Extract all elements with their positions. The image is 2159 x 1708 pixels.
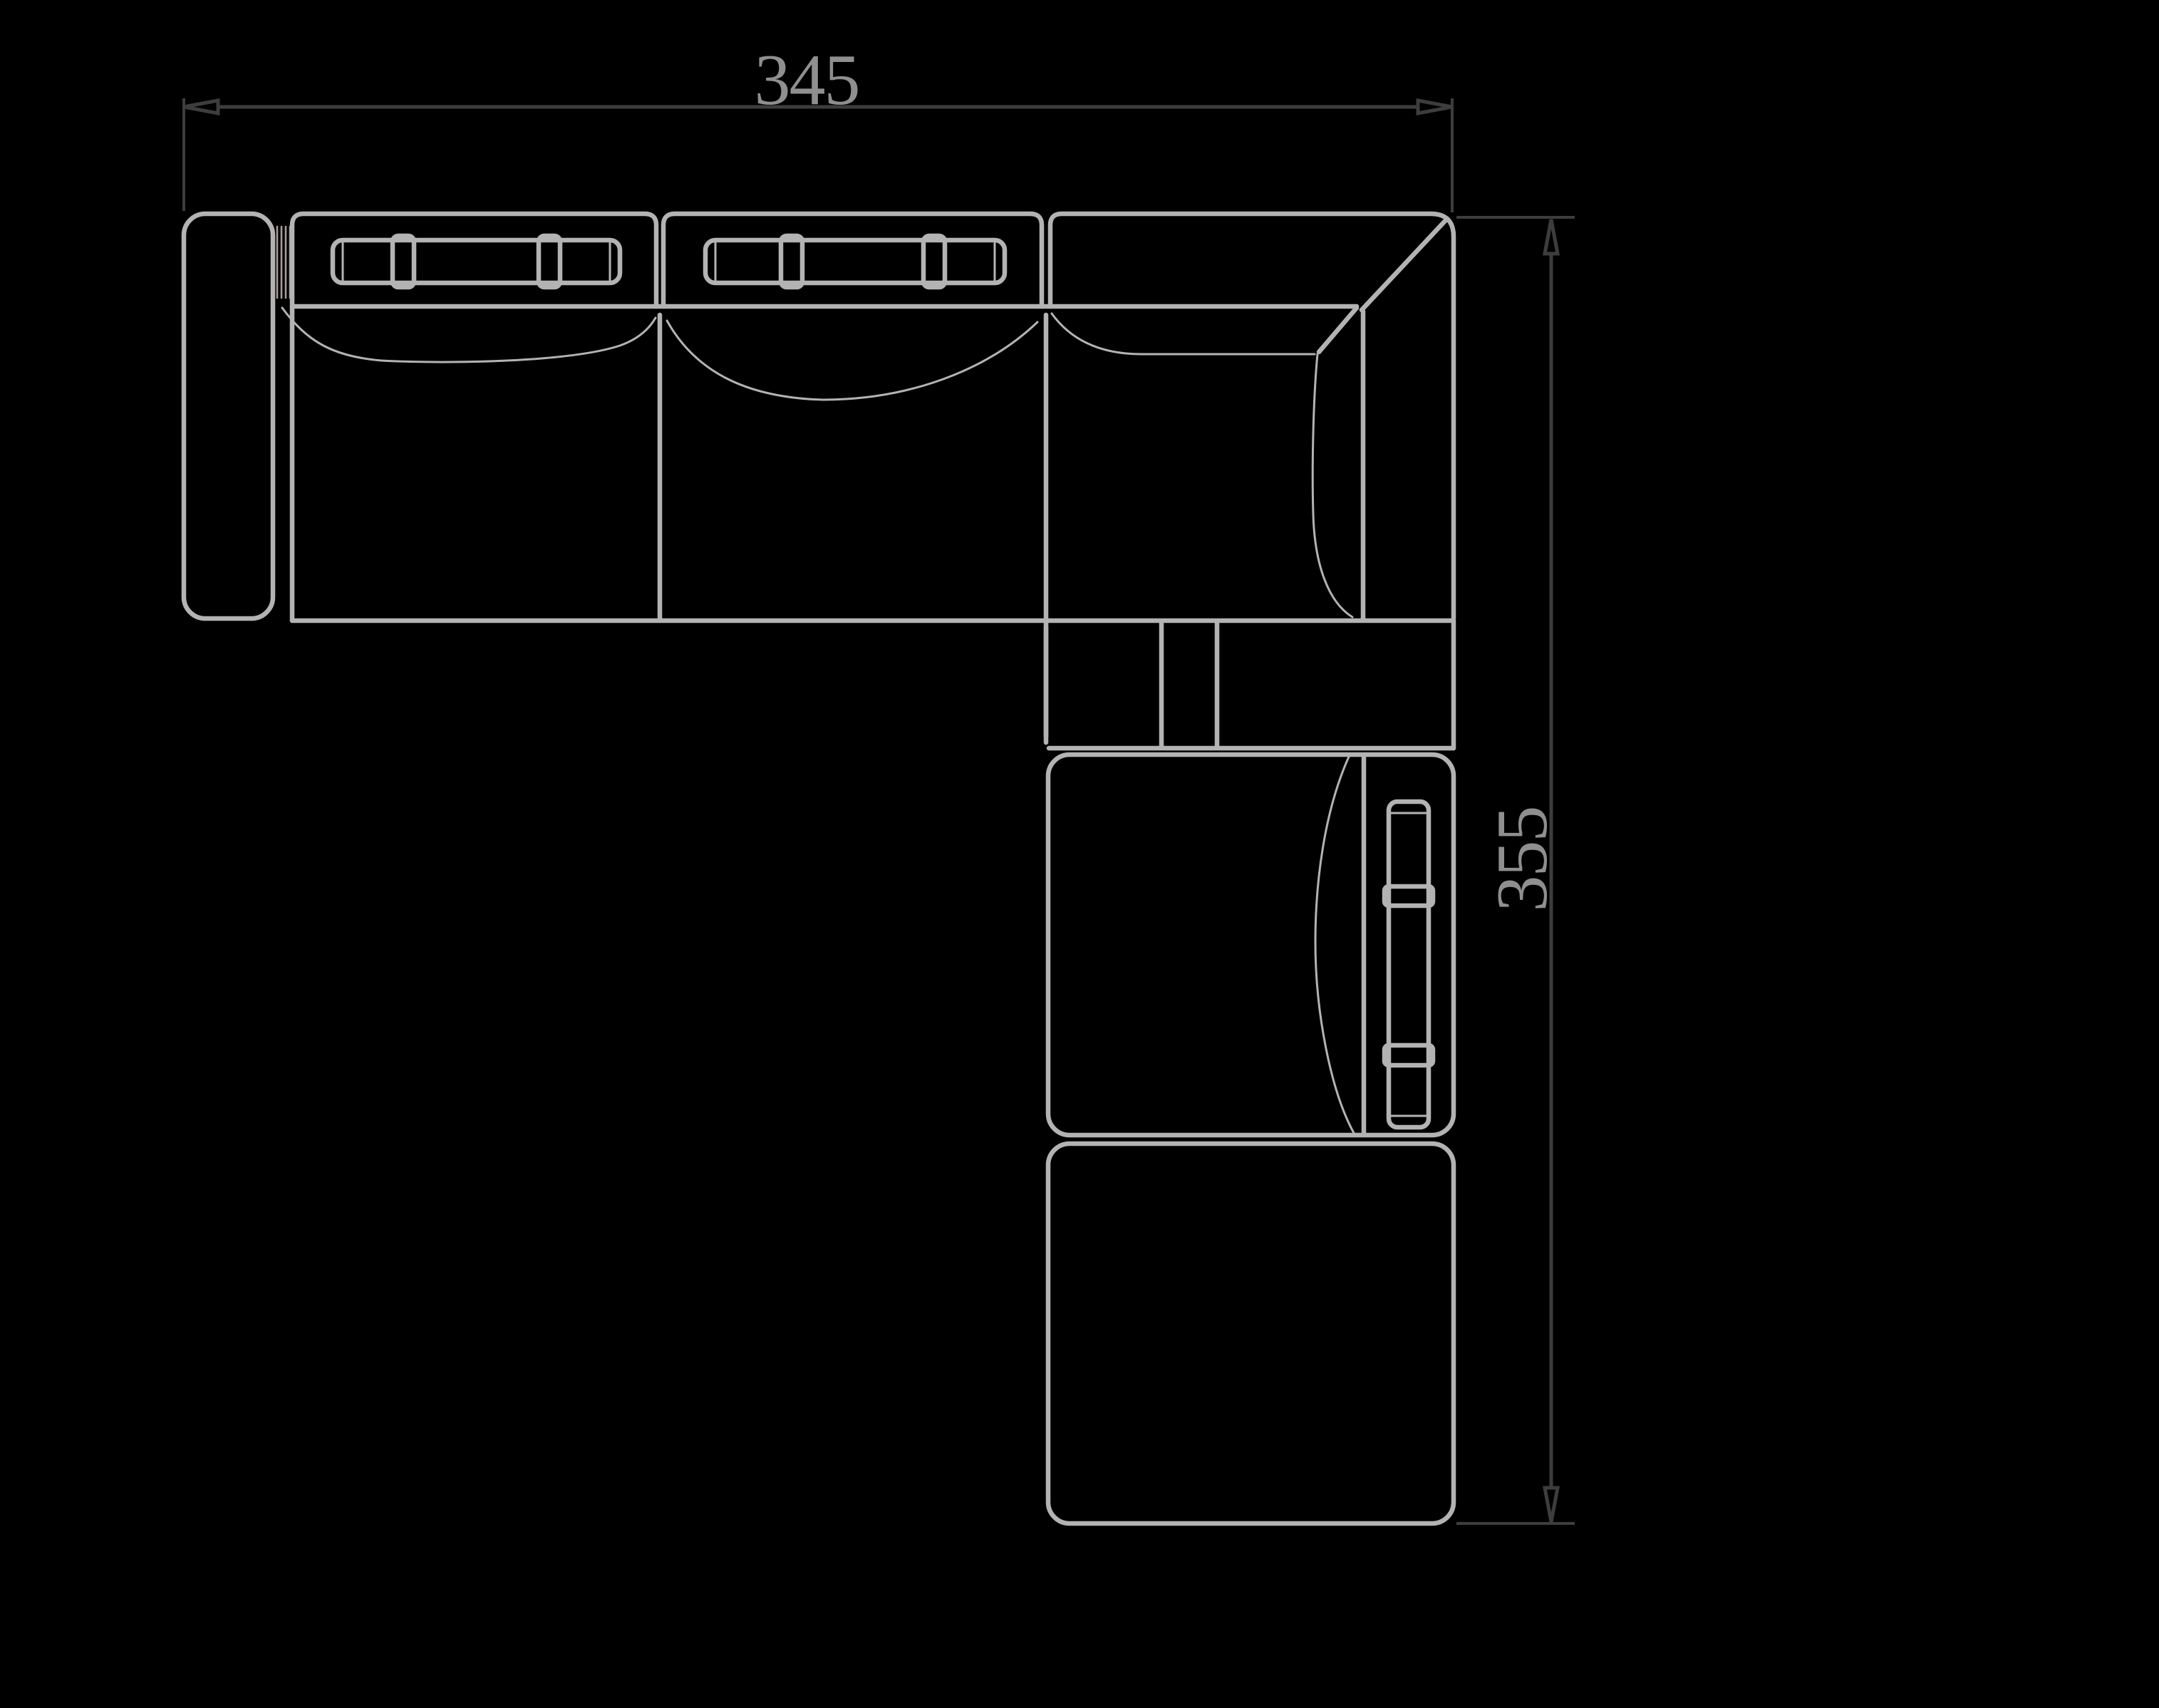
corner-cushion-top-curve xyxy=(1052,314,1315,354)
chaise-outline xyxy=(1048,755,1454,1135)
cushion-curve-2 xyxy=(667,321,1037,400)
ottoman-section xyxy=(1048,1144,1454,1523)
seat-section-1-back xyxy=(292,214,656,621)
corner-front-rail xyxy=(1046,621,1454,748)
headrest-bar-2-body xyxy=(705,240,1005,283)
sofa-plan-drawing: 345 355 xyxy=(0,0,2159,1708)
armrest-seam-hatch xyxy=(277,227,290,298)
width-dimension: 345 xyxy=(184,40,1452,212)
headrest-bar-1 xyxy=(333,236,620,287)
left-armrest xyxy=(184,214,273,618)
width-dimension-label: 345 xyxy=(755,40,859,120)
sofa-outline xyxy=(184,214,1454,1523)
headrest-bar-2-clamp-left xyxy=(781,236,802,287)
cushion-curve-1 xyxy=(282,308,656,362)
headrest-bar-1-clamp-right xyxy=(539,236,560,287)
corner-cushion-side-curve xyxy=(1313,354,1352,617)
arrowhead-left-icon xyxy=(184,100,218,113)
headrest-bar-1-clamp-left xyxy=(393,236,414,287)
chaise-bar-clamp-bottom xyxy=(1384,1045,1433,1065)
technical-drawing-page: 345 355 xyxy=(0,0,2159,1708)
headrest-bar-1-body xyxy=(333,240,620,283)
headrest-bar-2 xyxy=(705,236,1005,287)
chaise-headrest-bar-body xyxy=(1389,802,1429,1127)
height-dimension: 355 xyxy=(1456,217,1575,1523)
chaise-bolster-curve xyxy=(1315,757,1354,1133)
headrest-bar-2-clamp-right xyxy=(923,236,945,287)
corner-diagonal-line xyxy=(1362,219,1446,310)
chaise-headrest-bar xyxy=(1384,802,1433,1127)
height-dimension-label: 355 xyxy=(1482,807,1563,912)
corner-diagonal-short-line xyxy=(1319,308,1357,352)
arrowhead-right-icon xyxy=(1418,100,1452,113)
seat-section-2-back xyxy=(663,214,1042,306)
chaise-section xyxy=(1048,755,1454,1135)
arrowhead-down-icon xyxy=(1545,1488,1558,1522)
arrowhead-up-icon xyxy=(1545,219,1558,254)
chaise-bar-clamp-top xyxy=(1384,886,1433,906)
